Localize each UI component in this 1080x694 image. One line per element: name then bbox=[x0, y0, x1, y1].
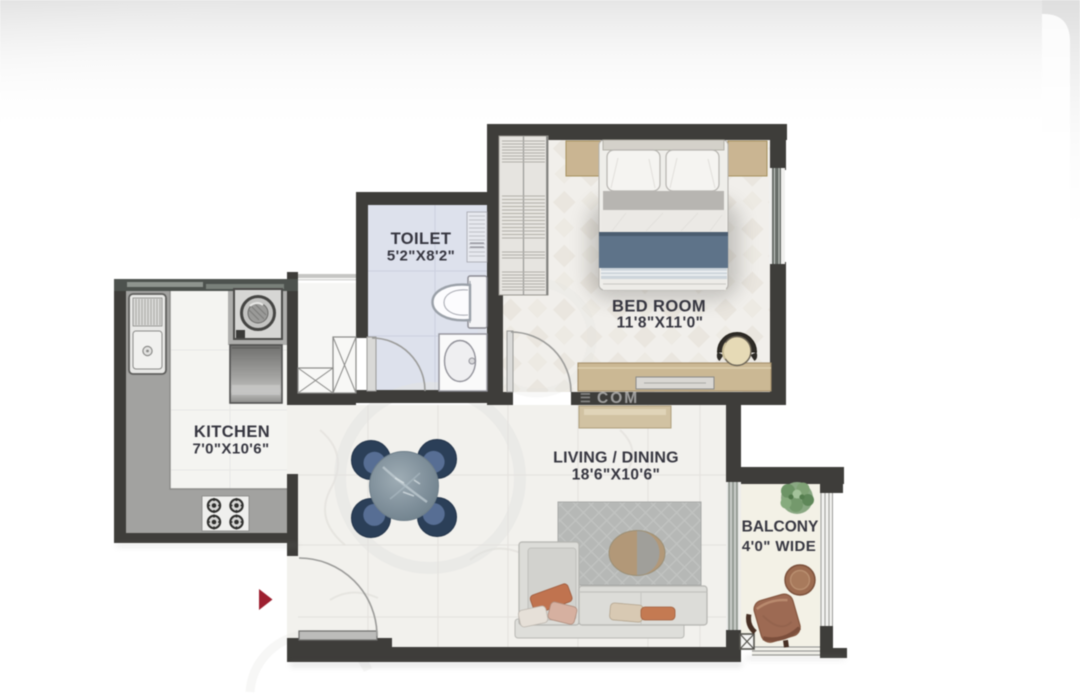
svg-text:COM: COM bbox=[597, 390, 639, 407]
svg-text:7'0"X10'6": 7'0"X10'6" bbox=[192, 441, 269, 458]
svg-text:BALCONY: BALCONY bbox=[742, 519, 819, 536]
svg-text:5'2"X8'2": 5'2"X8'2" bbox=[387, 248, 455, 265]
svg-text:LIVING / DINING: LIVING / DINING bbox=[553, 450, 679, 467]
svg-text:TOILET: TOILET bbox=[391, 230, 452, 248]
svg-text:4'0" WIDE: 4'0" WIDE bbox=[742, 538, 816, 555]
svg-text:KITCHEN: KITCHEN bbox=[194, 423, 270, 441]
svg-text:11'8"X11'0": 11'8"X11'0" bbox=[617, 315, 704, 332]
svg-text:☰: ☰ bbox=[580, 391, 591, 405]
svg-text:18'6"X10'6": 18'6"X10'6" bbox=[572, 467, 661, 484]
svg-text:BED ROOM: BED ROOM bbox=[612, 298, 706, 316]
